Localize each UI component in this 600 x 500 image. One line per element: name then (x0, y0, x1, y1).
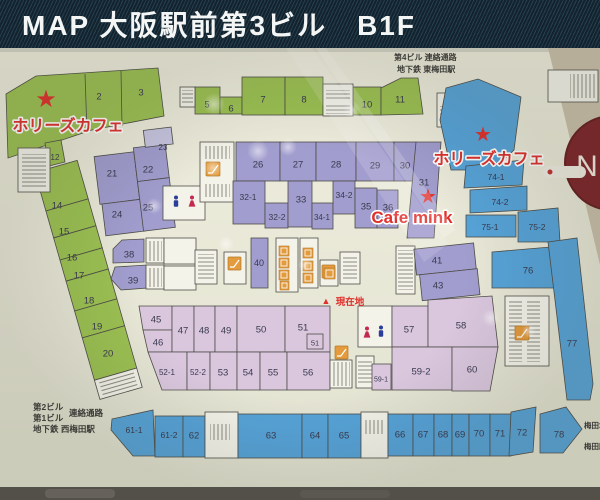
floor-map: 2356781011121415161718192021222324252627… (0, 0, 600, 500)
map-title: MAP 大阪駅前第3ビル B1F (22, 4, 416, 44)
map-title-bar: MAP 大阪駅前第3ビル B1F (0, 0, 600, 48)
floor-map-photo: MAP 大阪駅前第3ビル B1F 23567810111214151617181… (0, 0, 600, 500)
photo-bottom-edge (300, 490, 390, 498)
photo-bottom-edge (45, 489, 115, 498)
vignette (0, 48, 600, 500)
